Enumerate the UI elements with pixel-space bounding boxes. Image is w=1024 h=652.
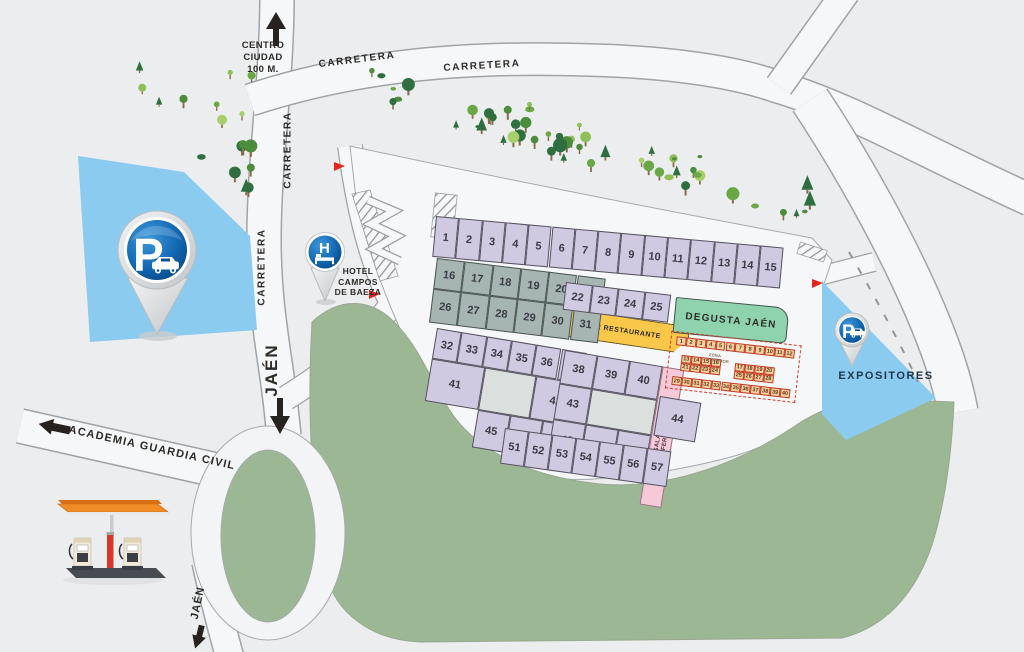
stands-layer: 1234567891011121314151617181920212627282… — [0, 0, 1024, 652]
stand: 44 — [653, 396, 701, 442]
fairground-site-map: P H P — [0, 0, 1024, 652]
stand: 26 — [429, 289, 461, 326]
stand: 40 — [780, 388, 791, 398]
stand: 16 — [433, 258, 465, 292]
centro-ciudad-label: CENTRO CIUDAD 100 M. — [228, 40, 298, 76]
stand: 22 — [563, 282, 593, 313]
stand: 12 — [784, 349, 795, 359]
carretera-side-label-1: CARRETERA — [283, 111, 294, 188]
stand: 23 — [589, 285, 619, 316]
stand: 29 — [513, 299, 545, 336]
stand: 27 — [457, 292, 489, 329]
stand: 17 — [461, 261, 493, 295]
stand: 28 — [485, 296, 517, 333]
jaen-mid-label: JAÉN — [262, 343, 282, 396]
stand: 24 — [709, 366, 720, 375]
stand: 19 — [517, 268, 549, 302]
stand: 24 — [615, 288, 645, 319]
stand: 28 — [763, 374, 774, 383]
stand: 57 — [643, 448, 672, 487]
stand: 25 — [641, 292, 671, 323]
stand: 18 — [489, 265, 521, 299]
stand: 41 — [425, 359, 485, 410]
stand: 15 — [757, 246, 784, 289]
carretera-side-label-2: CARRETERA — [257, 228, 268, 305]
expositores-label: EXPOSITORES — [838, 370, 933, 382]
hotel-campos-label: HOTEL CAMPOS DE BAEZA — [322, 266, 394, 298]
